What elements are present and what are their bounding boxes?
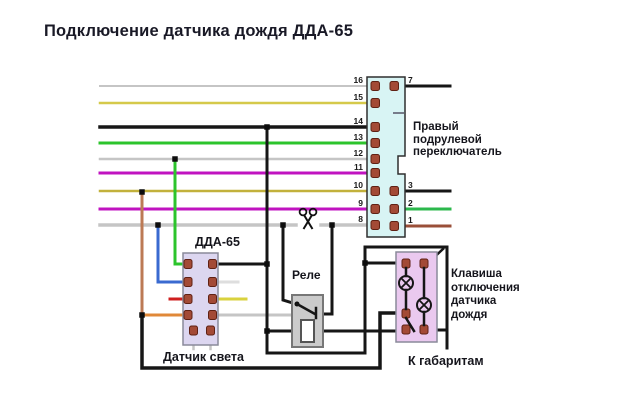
junction-dot bbox=[329, 222, 335, 228]
switch-pin-top-right bbox=[420, 259, 428, 268]
dda-pin-right-2 bbox=[209, 278, 217, 287]
pin-number-10: 10 bbox=[354, 180, 364, 190]
dda-pin-left-4 bbox=[184, 311, 192, 320]
cut-left-drop-wire bbox=[283, 225, 296, 304]
pin-number-7: 7 bbox=[408, 75, 413, 85]
pin-number-9: 9 bbox=[358, 198, 363, 208]
pin-number-2: 2 bbox=[408, 198, 413, 208]
switch-pin-top-left bbox=[402, 259, 410, 268]
dda-pin-right-3 bbox=[209, 295, 217, 304]
dda-pin-left-1 bbox=[184, 260, 192, 269]
connector-pin-16 bbox=[371, 82, 380, 91]
junction-dot bbox=[264, 261, 270, 267]
wiring-diagram-page: { "title": "Подключение датчика дождя ДД… bbox=[0, 0, 630, 417]
pin-number-3: 3 bbox=[408, 180, 413, 190]
dda-pin-bottom-1 bbox=[190, 326, 198, 335]
dda-pin-left-2 bbox=[184, 278, 192, 287]
connector-pin-1 bbox=[390, 222, 399, 231]
pin-number-11: 11 bbox=[354, 162, 363, 172]
connector-pin-15 bbox=[371, 99, 380, 108]
connector-pin-13 bbox=[371, 139, 380, 148]
pin-number-8: 8 bbox=[358, 214, 363, 224]
connector-pin-9 bbox=[371, 205, 380, 214]
connector-pin-11 bbox=[371, 169, 380, 178]
scissors-icon bbox=[300, 209, 317, 229]
pin-number-16: 16 bbox=[354, 75, 364, 85]
connector-pin-12 bbox=[371, 155, 380, 164]
junction-dot bbox=[172, 156, 178, 162]
dda-pin-right-1 bbox=[209, 260, 217, 269]
blue-tap-wire bbox=[158, 225, 184, 282]
connector-pin-7 bbox=[390, 82, 399, 91]
connector-pin-2 bbox=[390, 205, 399, 214]
green-tap-wire bbox=[175, 159, 184, 264]
switch-pin-bottom-left bbox=[402, 325, 410, 334]
pin-number-15: 15 bbox=[354, 92, 364, 102]
relay-coil-symbol bbox=[301, 320, 314, 342]
dda-pin-bottom-2 bbox=[207, 326, 215, 335]
junction-dot bbox=[264, 124, 270, 130]
connector-pin-14 bbox=[371, 123, 380, 132]
pin-number-1: 1 bbox=[408, 215, 413, 225]
switch-pin-bottom-right bbox=[420, 325, 428, 334]
schematic-canvas: 16 15 14 13 12 11 10 9 8 7 3 2 1 bbox=[0, 0, 630, 417]
junction-dot bbox=[139, 189, 145, 195]
pin-number-14: 14 bbox=[354, 116, 364, 126]
junction-dot bbox=[362, 260, 368, 266]
pin-number-12: 12 bbox=[354, 148, 364, 158]
dda-pin-right-4 bbox=[209, 311, 217, 320]
junction-dot bbox=[264, 328, 270, 334]
connector-pin-3 bbox=[390, 187, 399, 196]
connector-pin-8 bbox=[371, 221, 380, 230]
dda-pin-left-3 bbox=[184, 295, 192, 304]
pin-number-13: 13 bbox=[354, 132, 364, 142]
junction-dot bbox=[280, 222, 286, 228]
junction-dot bbox=[155, 222, 161, 228]
junction-dot bbox=[139, 312, 145, 318]
connector-pin-10 bbox=[371, 187, 380, 196]
